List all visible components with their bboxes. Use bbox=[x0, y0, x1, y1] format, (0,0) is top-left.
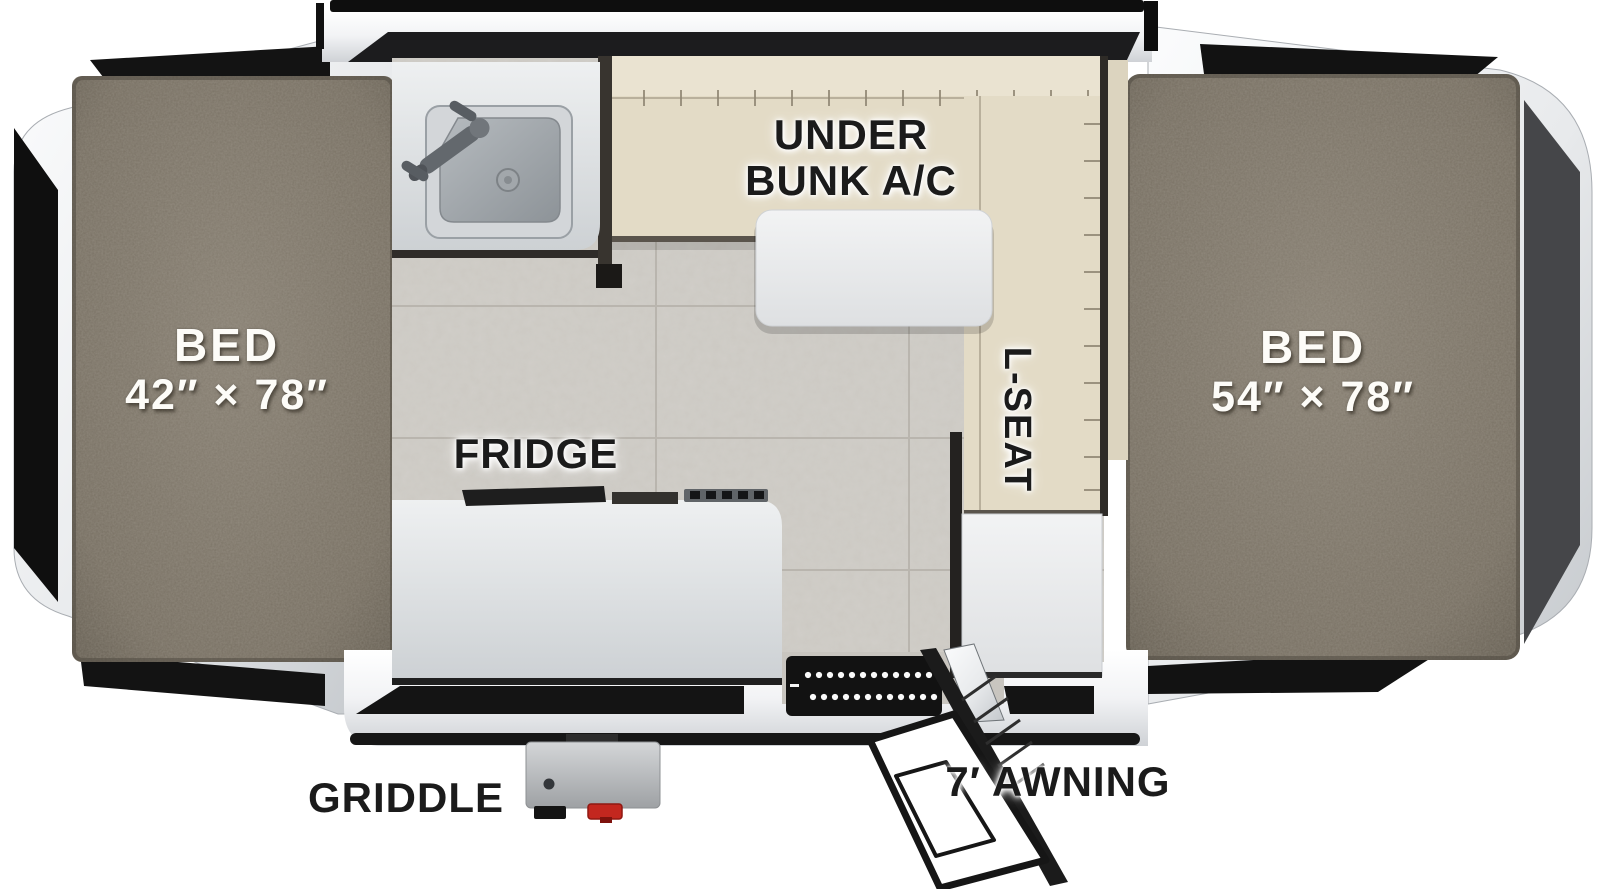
roof-end-cap-right bbox=[1144, 1, 1158, 51]
dinette-wall-foot bbox=[596, 264, 622, 288]
bench-shadow bbox=[612, 242, 768, 250]
griddle-label: GRIDDLE bbox=[256, 775, 556, 821]
fridge-label: FRIDGE bbox=[386, 431, 686, 477]
under-bunk-ac-line2: BUNK A/C bbox=[601, 158, 1101, 204]
awning-label: 7′ AWNING bbox=[908, 759, 1208, 805]
sink-counter bbox=[392, 62, 600, 258]
under-bunk-ac-line1: UNDER bbox=[601, 112, 1101, 158]
kitchen-counter-base bbox=[392, 678, 782, 685]
sink-counter-edge bbox=[392, 250, 598, 258]
sink-basin bbox=[440, 118, 560, 222]
bed-right-label: BED 54″ × 78″ bbox=[1123, 322, 1503, 422]
step-latch-mark bbox=[790, 684, 799, 687]
l-seat-label: L-SEAT bbox=[994, 270, 1040, 570]
bench-front-edge bbox=[612, 236, 768, 242]
bed-left-label: BED 42″ × 78″ bbox=[37, 320, 417, 420]
seat-bed-divider bbox=[1100, 56, 1108, 516]
griddle-gas-valve-icon bbox=[588, 804, 622, 819]
kitchen-counter bbox=[392, 486, 782, 685]
bottom-wall-inset-right bbox=[1004, 686, 1094, 714]
stove-controls-icon bbox=[684, 489, 768, 502]
roof-rail bbox=[330, 0, 1144, 12]
griddle-valve-stem bbox=[600, 817, 612, 823]
bed-left-title: BED bbox=[37, 320, 417, 370]
floorplan-page: BED 42″ × 78″ BED 54″ × 78″ UNDER BUNK A… bbox=[0, 0, 1600, 889]
cabinet-wall-strip bbox=[950, 432, 962, 678]
dinette-table bbox=[754, 210, 994, 334]
sink-drain-center bbox=[504, 176, 512, 184]
fridge-cooktop-cabinet bbox=[392, 500, 782, 678]
bottom-wall-inset-left bbox=[356, 686, 744, 714]
bench-backrest bbox=[612, 56, 1102, 96]
bed-right-title: BED bbox=[1123, 322, 1503, 372]
right-bed-accent-top bbox=[1200, 44, 1498, 77]
bed-left-dims: 42″ × 78″ bbox=[37, 370, 417, 420]
stove-back-panel bbox=[612, 492, 678, 504]
roof-end-cap-left bbox=[316, 3, 324, 49]
bed-right-dims: 54″ × 78″ bbox=[1123, 372, 1503, 422]
under-bunk-ac-label: UNDER BUNK A/C bbox=[601, 112, 1101, 204]
bottom-rail bbox=[350, 733, 1140, 745]
